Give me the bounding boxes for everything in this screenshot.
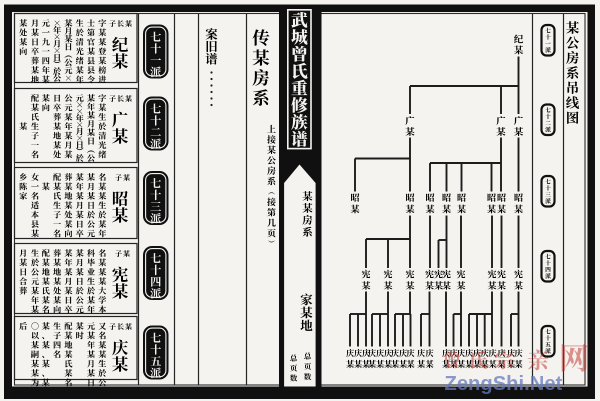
svg-text:ZengShi.Net: ZengShi.Net	[445, 373, 563, 395]
